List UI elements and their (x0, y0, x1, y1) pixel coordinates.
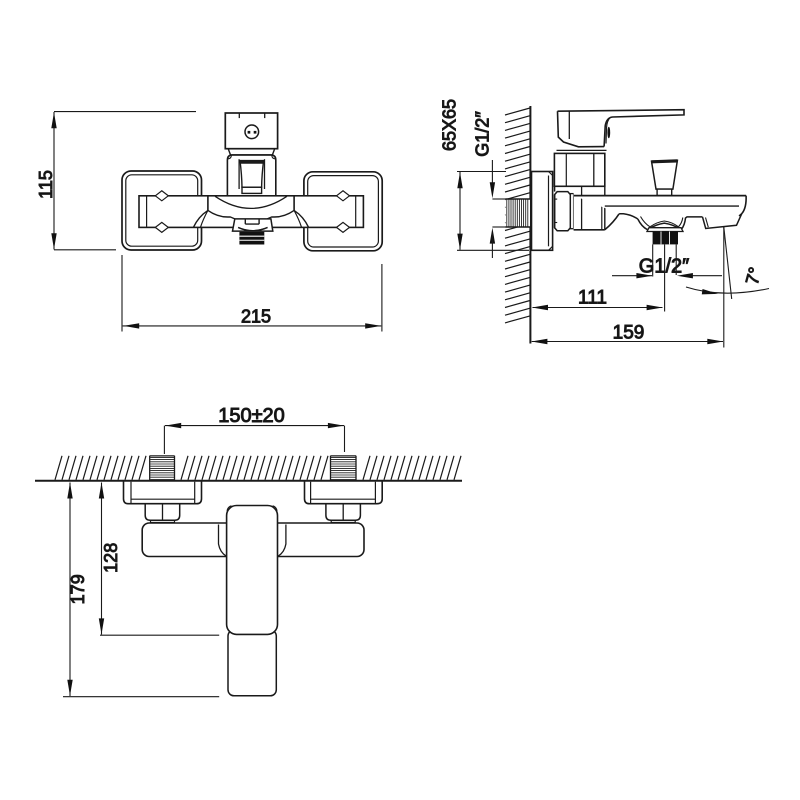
svg-text:G1/2″: G1/2″ (473, 111, 493, 157)
svg-text:159: 159 (613, 323, 645, 344)
svg-text:111: 111 (578, 288, 607, 309)
svg-text:150±20: 150±20 (218, 405, 285, 427)
svg-text:65X65: 65X65 (440, 99, 460, 151)
svg-text:215: 215 (241, 307, 271, 327)
svg-text:128: 128 (101, 543, 121, 573)
svg-text:G1/2″: G1/2″ (639, 256, 689, 278)
svg-text:115: 115 (36, 170, 56, 199)
svg-text:179: 179 (68, 574, 88, 604)
